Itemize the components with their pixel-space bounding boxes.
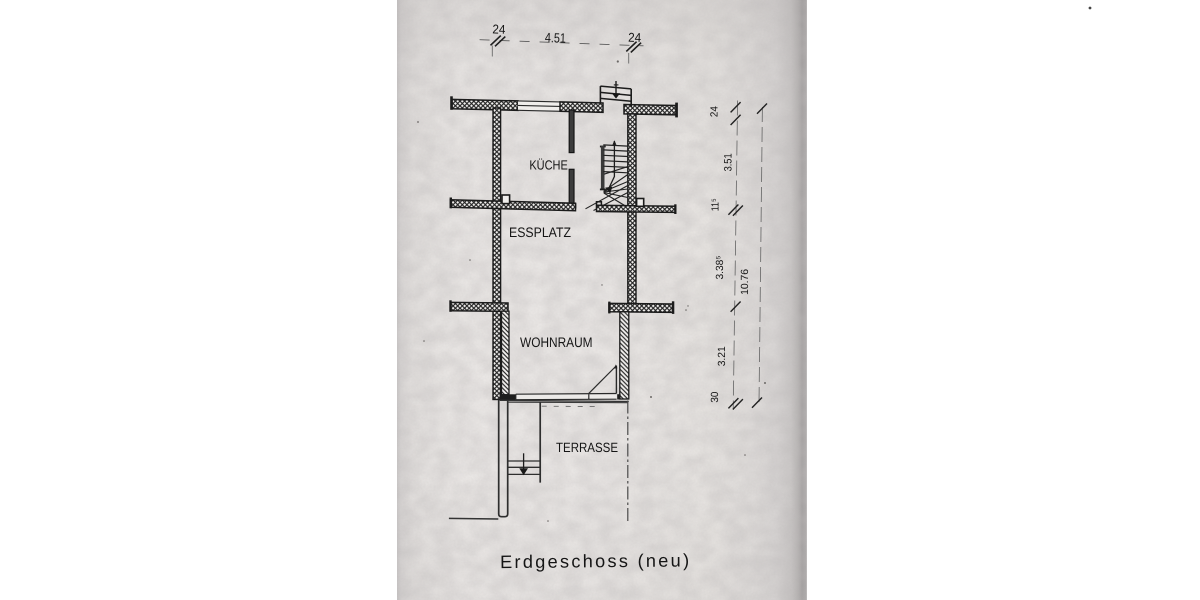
svg-text:KÜCHE: KÜCHE xyxy=(529,157,568,172)
svg-text:3.21: 3.21 xyxy=(717,346,728,366)
svg-text:TERRASSE: TERRASSE xyxy=(556,440,618,455)
svg-text:24: 24 xyxy=(628,30,642,45)
svg-text:3.51: 3.51 xyxy=(723,153,735,171)
svg-text:4.51: 4.51 xyxy=(545,30,567,46)
svg-text:11⁵: 11⁵ xyxy=(710,198,721,211)
svg-text:10.76: 10.76 xyxy=(740,269,751,295)
svg-text:24: 24 xyxy=(492,21,506,36)
svg-text:3.38⁵: 3.38⁵ xyxy=(715,256,726,280)
svg-text:Erdgeschoss (neu): Erdgeschoss (neu) xyxy=(500,550,689,572)
svg-text:ESSPLATZ: ESSPLATZ xyxy=(509,225,571,240)
svg-text:24: 24 xyxy=(710,106,721,117)
svg-text:WOHNRAUM: WOHNRAUM xyxy=(520,335,593,350)
svg-text:30: 30 xyxy=(710,391,721,402)
